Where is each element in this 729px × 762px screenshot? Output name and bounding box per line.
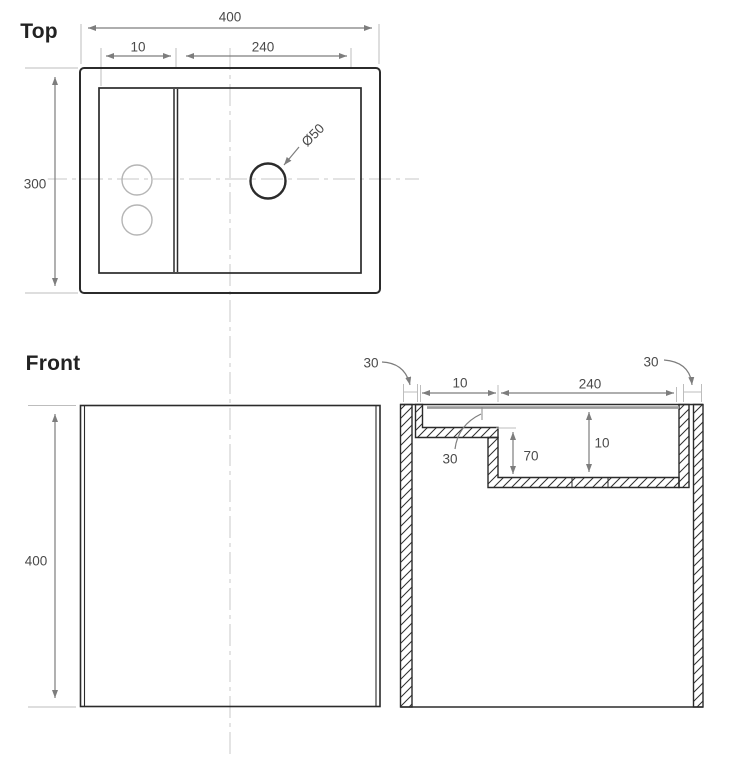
dim-label-ledge-wall: 30 xyxy=(441,452,458,467)
dim-label-top-tray-offset: 10 xyxy=(129,40,146,55)
faucet-hole-1 xyxy=(122,165,152,195)
dim-label-front-height: 400 xyxy=(24,554,49,569)
top-view-drawing xyxy=(25,24,380,293)
top-view-dimension-lines xyxy=(55,28,372,286)
section-right-wall xyxy=(694,405,704,708)
dim-label-ledge-width: 10 xyxy=(451,376,468,391)
section-step-and-floor xyxy=(488,438,679,488)
drain-leader-arrow xyxy=(284,147,299,165)
dim-label-step-depth: 70 xyxy=(522,449,539,464)
dim-label-top-overall-depth: 300 xyxy=(23,177,48,192)
dim-label-left-wall: 30 xyxy=(362,356,379,371)
section-extension-lines xyxy=(404,384,702,428)
section-ledge xyxy=(416,405,499,438)
top-view-extension-lines xyxy=(25,24,379,293)
front-view-title: Front xyxy=(26,352,81,376)
dim-label-top-overall-width: 400 xyxy=(218,10,243,25)
leader-right-wall xyxy=(664,360,692,385)
dim-label-basin-depth: 10 xyxy=(593,436,610,451)
section-right-inner-wall xyxy=(679,405,689,488)
leader-left-wall xyxy=(382,362,410,385)
technical-drawing-page: Top Front 400 10 240 300 Ø50 400 30 30 1… xyxy=(0,0,729,762)
dim-label-right-wall: 30 xyxy=(642,355,659,370)
section-view-drawing xyxy=(382,360,703,707)
drain-hole xyxy=(251,164,286,199)
drawing-canvas xyxy=(0,0,729,762)
faucet-hole-2 xyxy=(122,205,152,235)
dim-label-section-basin-width: 240 xyxy=(578,377,603,392)
section-left-wall xyxy=(401,405,413,708)
front-view-drawing xyxy=(28,406,380,708)
top-view-title: Top xyxy=(20,20,58,44)
dim-label-top-basin-width: 240 xyxy=(251,40,276,55)
centerlines xyxy=(45,48,419,756)
section-hatched-walls xyxy=(401,405,704,708)
